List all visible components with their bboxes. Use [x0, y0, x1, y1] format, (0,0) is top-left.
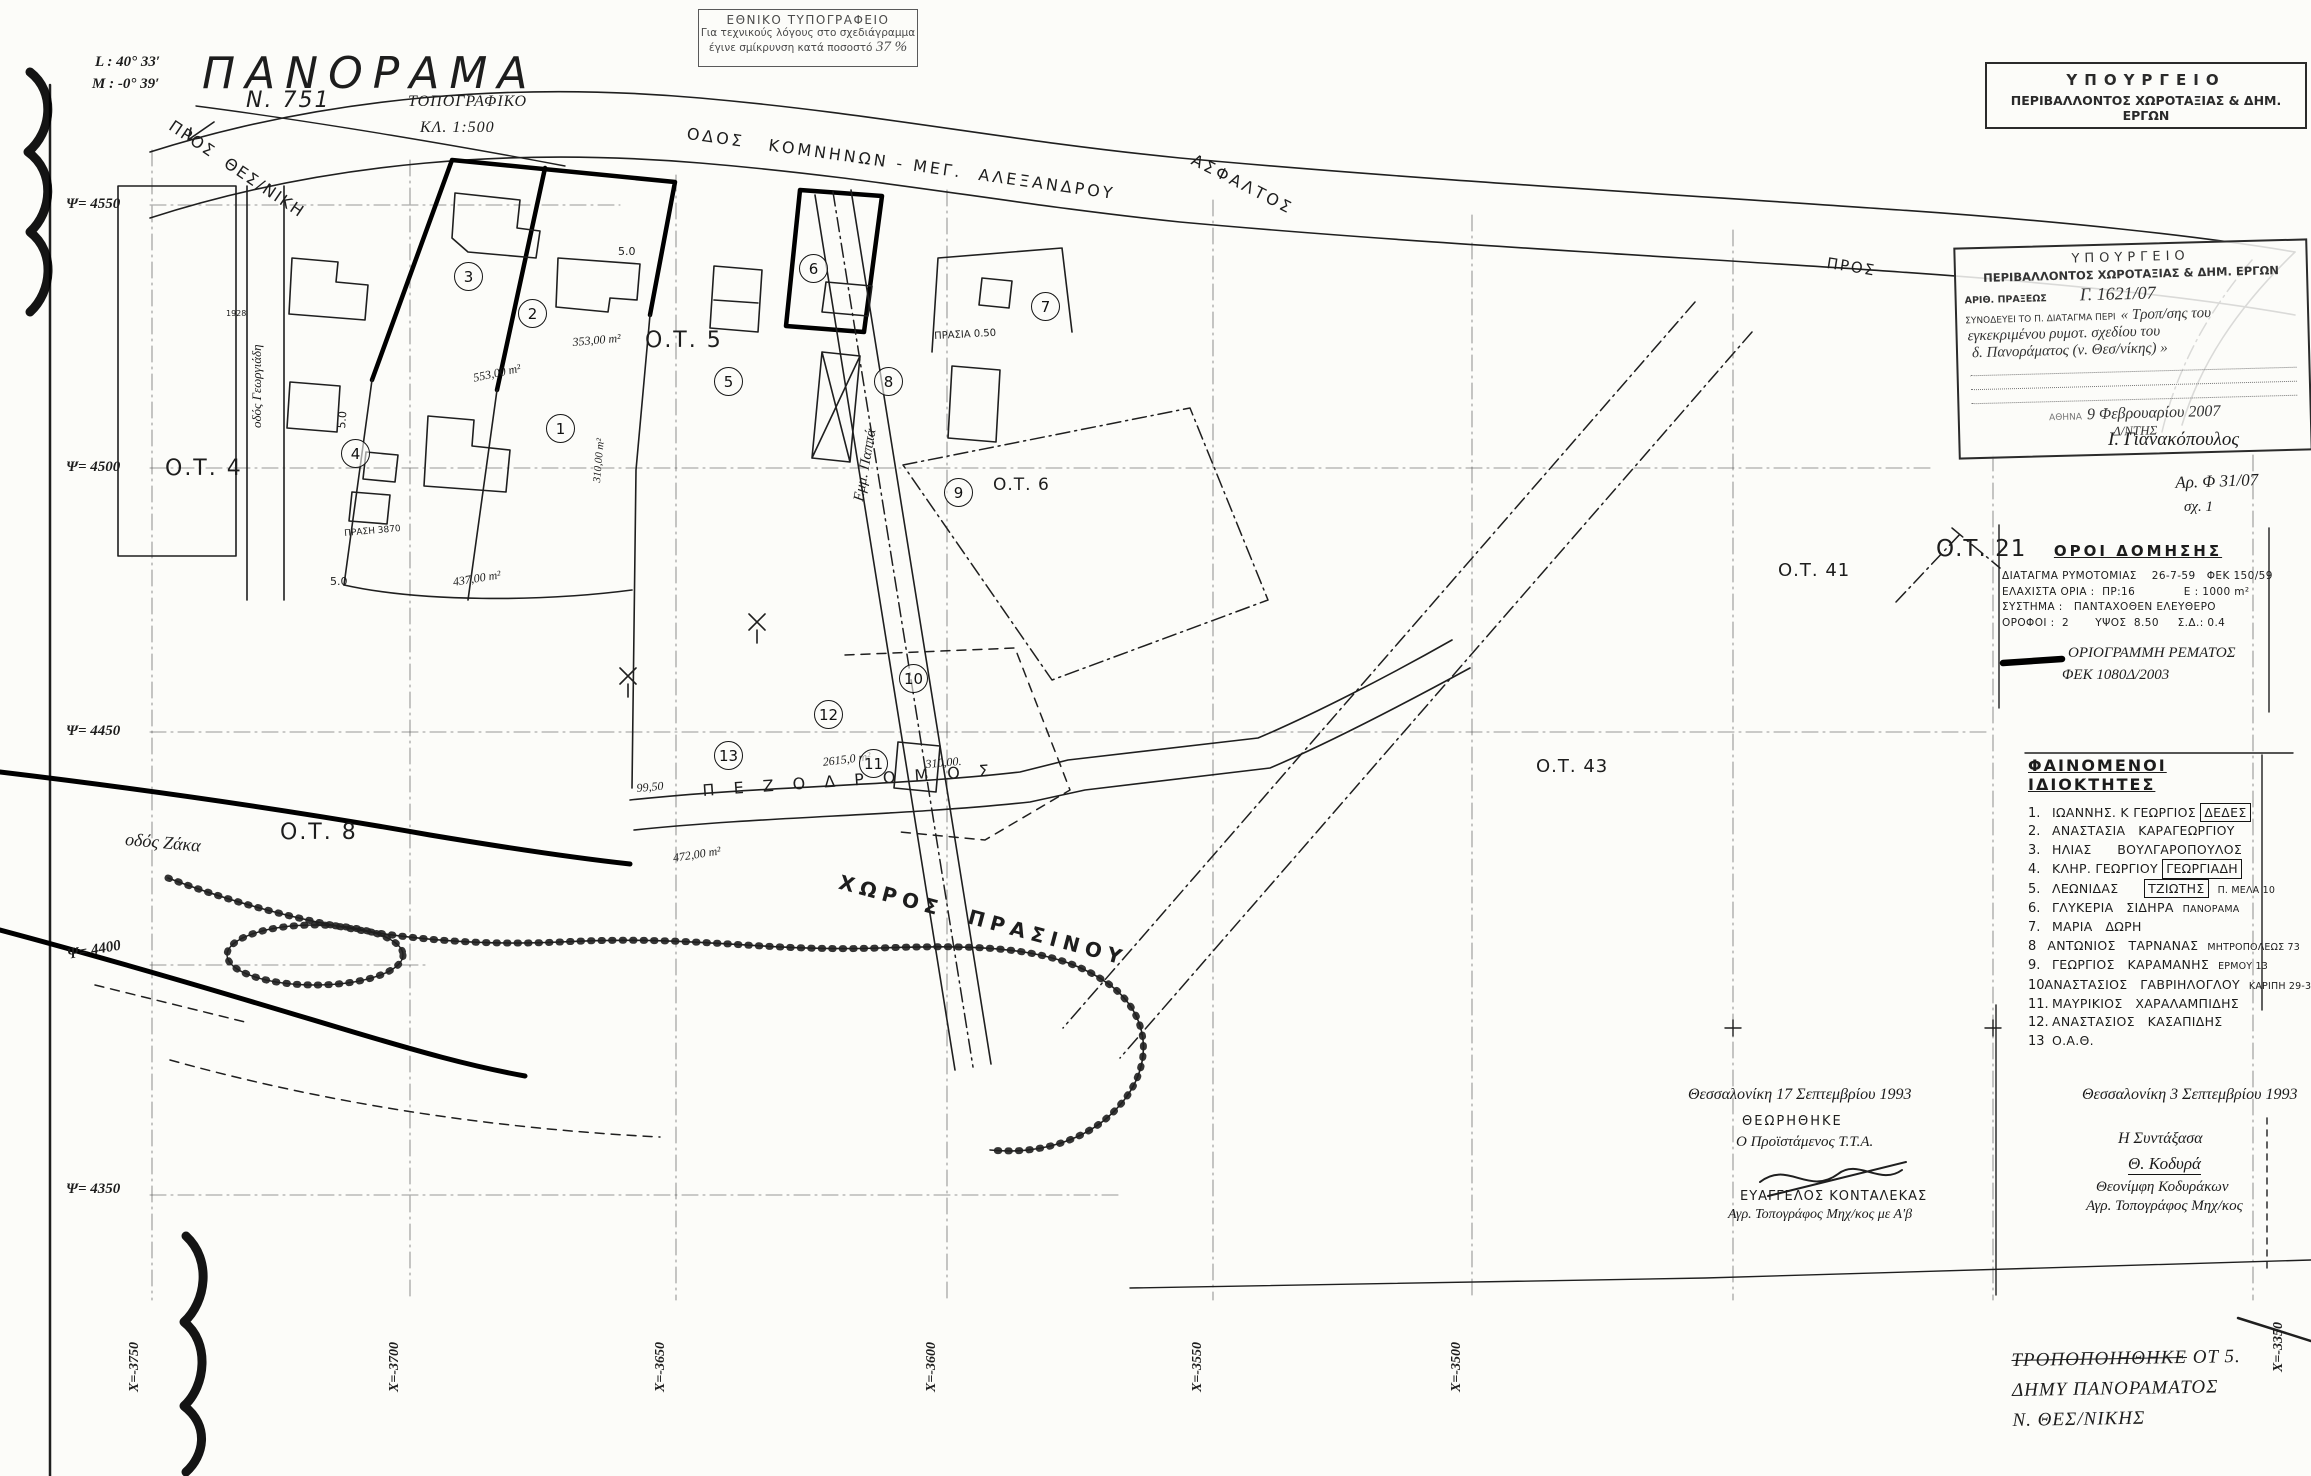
- width-measure: 5.0: [618, 246, 636, 257]
- owner-name: ΗΛΙΑΣ ΒΟΥΛΓΑΡΟΠΟΥΛΟΣ: [2052, 841, 2242, 858]
- owner-address-note: ΚΑΡΙΠΗ 29-31: [2249, 978, 2311, 995]
- owner-number: 5.: [2028, 881, 2052, 898]
- stamp-city-label: ΑΘΗΝΑ: [2049, 412, 2082, 423]
- block-label-ot8: Ο.Τ. 8: [280, 822, 358, 844]
- print-office-note-1: Για τεχνικούς λόγους στο σχεδιάγραμμα: [699, 27, 917, 39]
- owner-number: 7.: [2028, 919, 2052, 936]
- grid-x-label: Χ=-3350: [2272, 1322, 2286, 1372]
- building-terms-rows: ΔΙΑΤΑΓΜΑ ΡΥΜΟΤΟΜΙΑΣ 26-7-59 ΦΕΚ 150/59ΕΛ…: [2002, 569, 2274, 631]
- parcel-number-7: 7: [1031, 292, 1060, 321]
- owner-number: 10: [2028, 977, 2045, 994]
- parcel-number-11: 11: [859, 749, 888, 778]
- owner-name: ΜΑΥΡΙΚΙΟΣ ΧΑΡΑΛΑΜΠΙΔΗΣ: [2052, 995, 2239, 1012]
- building-terms-row: ΔΙΑΤΑΓΜΑ ΡΥΜΟΤΟΜΙΑΣ 26-7-59 ΦΕΚ 150/59: [2002, 569, 2274, 585]
- owner-row: 4.ΚΛΗΡ. ΓΕΩΡΓΙΟΥ ΓΕΩΡΓΙΑΔΗ: [2028, 859, 2300, 878]
- sign-left-role: Ο Προϊστάμενος Τ.Τ.Α.: [1736, 1134, 1988, 1151]
- sign-right-title: Αγρ. Τοπογράφος Μηχ/κος: [2086, 1198, 2302, 1215]
- block-label-ot6: Ο.Τ. 6: [993, 477, 1050, 494]
- owners-panel: ΦΑΙΝΟΜΕΝΟΙ ΙΔΙΟΚΤΗΤΕΣ 1.ΙΩΑΝΝΗΣ. Κ ΓΕΩΡΓ…: [2028, 756, 2300, 1050]
- owner-row: 6.ΓΛΥΚΕΡΙΑ ΣΙΔΗΡΑΠΑΝΟΡΑΜΑ: [2028, 899, 2300, 918]
- owner-address-note: ΕΡΜΟΥ 13: [2218, 958, 2268, 975]
- owner-number: 6.: [2028, 900, 2052, 917]
- parcel-number-3: 3: [454, 262, 483, 291]
- revision-note: ΤΡΟΠΟΠΟΙΗΘΗΚΕ ΟΤ 5. ΔΗΜΥ ΠΑΝΟΡΑΜΑΤΟΣ Ν. …: [2011, 1342, 2242, 1436]
- revision-line-3: Ν. ΘΕΣ/ΝΙΚΗΣ: [2012, 1402, 2242, 1436]
- building-terms-row: ΕΛΑΧΙΣΤΑ ΟΡΙΑ : ΠΡ:16 Ε : 1000 m²: [2002, 585, 2274, 601]
- parcel-number-6: 6: [799, 254, 828, 283]
- approval-stamp: ΥΠΟΥΡΓΕΙΟ ΠΕΡΙΒΑΛΛΟΝΤΟΣ ΧΩΡΟΤΑΞΙΑΣ & ΔΗΜ…: [1953, 238, 2311, 459]
- owner-name: ΑΝΤΩΝΙΟΣ ΤΑΡΝΑΝΑΣ: [2047, 937, 2198, 954]
- owner-row: 1.ΙΩΑΝΝΗΣ. Κ ΓΕΩΡΓΙΟΣ ΔΕΔΕΣ: [2028, 803, 2300, 822]
- owner-name: ΙΩΑΝΝΗΣ. Κ ΓΕΩΡΓΙΟΣ: [2052, 804, 2200, 821]
- parcel-number-2: 2: [518, 299, 547, 328]
- owner-name: ΓΕΩΡΓΙΟΣ ΚΑΡΑΜΑΝΗΣ: [2052, 956, 2209, 973]
- parcel-number-8: 8: [874, 367, 903, 396]
- parcel-number-13: 13: [714, 741, 743, 770]
- owners-title: ΦΑΙΝΟΜΕΝΟΙ ΙΔΙΟΚΤΗΤΕΣ: [2028, 756, 2300, 794]
- decree-subject-1: « Τροπ/σης του: [2120, 305, 2211, 323]
- revision-line-1: ΤΡΟΠΟΠΟΙΗΘΗΚΕ ΟΤ 5.: [2011, 1342, 2241, 1376]
- map-type-label: ΤΟΠΟΓΡΑΦΙΚΟ: [408, 94, 527, 110]
- owner-row: 5.ΛΕΩΝΙΔΑΣ ΤΖΙΩΤΗΣΠ. ΜΕΛΑ 10: [2028, 879, 2300, 899]
- owner-row: 9.ΓΕΩΡΓΙΟΣ ΚΑΡΑΜΑΝΗΣΕΡΜΟΥ 13: [2028, 956, 2300, 975]
- owner-name: ΑΝΑΣΤΑΣΙΑ ΚΑΡΑΓΕΩΡΓΙΟΥ: [2052, 822, 2235, 839]
- owner-name-boxed: ΓΕΩΡΓΙΑΔΗ: [2162, 859, 2242, 878]
- owner-number: 4.: [2028, 861, 2052, 878]
- print-office-note-2: έγινε σμίκρυνση κατά ποσοστό 37 %: [699, 39, 917, 56]
- stream-legend-fek: ΦΕΚ 1080Δ/2003: [2062, 668, 2169, 683]
- parcel-number-1: 1: [546, 414, 575, 443]
- owner-number: 11.: [2028, 996, 2052, 1013]
- grid-y-label: Ψ= 4450: [66, 724, 120, 739]
- owner-name-boxed: ΤΖΙΩΤΗΣ: [2144, 879, 2208, 898]
- sheet-note: σχ. 1: [2184, 500, 2213, 515]
- act-number-label: ΑΡΙΘ. ΠΡΑΞΕΩΣ: [1965, 293, 2047, 306]
- grid-y-label: Ψ= 4550: [66, 197, 120, 212]
- parcel-number-5: 5: [714, 367, 743, 396]
- owner-address-note: ΠΑΝΟΡΑΜΑ: [2183, 901, 2240, 918]
- grid-x-label: Χ=-3700: [388, 1342, 402, 1392]
- owner-row: 3.ΗΛΙΑΣ ΒΟΥΛΓΑΡΟΠΟΥΛΟΣ: [2028, 841, 2300, 859]
- grid-x-label: Χ=-3550: [1191, 1342, 1205, 1392]
- owner-row: 12.ΑΝΑΣΤΑΣΙΟΣ ΚΑΣΑΠΙΔΗΣ: [2028, 1013, 2300, 1031]
- owner-name: ΜΑΡΙΑ ΔΩΡΗ: [2052, 918, 2142, 935]
- block-label-ot4: Ο.Τ. 4: [165, 458, 243, 480]
- owner-number: 8: [2028, 938, 2047, 955]
- block-label-ot21: Ο.Τ. 21: [1936, 538, 2026, 561]
- ministry-header-line1: ΥΠΟΥΡΓΕΙΟ: [1987, 71, 2305, 89]
- signature-block-right: Θεσσαλονίκη 3 Σεπτεμβρίου 1993 Η Συντάξα…: [2082, 1086, 2302, 1215]
- sign-left-date: Θεσσαλονίκη 17 Σεπτεμβρίου 1993: [1688, 1086, 1988, 1104]
- grid-y-label: Ψ= 4350: [66, 1182, 120, 1197]
- right-diagonal-streets: [1063, 302, 2000, 1058]
- block-label-ot43: Ο.Τ. 43: [1536, 758, 1608, 776]
- owner-name: ΓΛΥΚΕΡΙΑ ΣΙΔΗΡΑ: [2052, 899, 2174, 916]
- reduction-percent: 37 %: [876, 39, 907, 55]
- revision-line-2: ΔΗΜΥ ΠΑΝΟΡΑΜΑΤΟΣ: [2012, 1372, 2242, 1406]
- parcel-number-9: 9: [944, 478, 973, 507]
- length-measure-9950: 99,50: [636, 780, 664, 794]
- owner-name: ΑΝΑΣΤΑΣΙΟΣ ΚΑΣΑΠΙΔΗΣ: [2052, 1013, 2223, 1030]
- sign-left-title: Αγρ. Τοπογράφος Μηχ/κος με Α'β: [1728, 1207, 1988, 1223]
- owner-row: 13Ο.Α.Θ.: [2028, 1032, 2300, 1050]
- parcel-number-10: 10: [899, 664, 928, 693]
- owners-list: 1.ΙΩΑΝΝΗΣ. Κ ΓΕΩΡΓΙΟΣ ΔΕΔΕΣ2.ΑΝΑΣΤΑΣΙΑ Κ…: [2028, 803, 2300, 1050]
- print-office-title: ΕΘΝΙΚΟ ΤΥΠΟΓΡΑΦΕΙΟ: [699, 13, 917, 27]
- act-number-value: Γ. 1621/07: [2080, 282, 2156, 304]
- owner-row: 2.ΑΝΑΣΤΑΣΙΑ ΚΑΡΑΓΕΩΡΓΙΟΥ: [2028, 822, 2300, 840]
- owner-name: ΛΕΩΝΙΔΑΣ: [2052, 880, 2144, 897]
- sign-right-role: Η Συντάξασα: [2118, 1130, 2302, 1148]
- street-label-georgiadi: οδός Γεωργιάδη: [250, 344, 263, 428]
- parcel-number-4: 4: [341, 439, 370, 468]
- parcel-number-12: 12: [814, 700, 843, 729]
- map-scale-label: ΚΛ. 1:500: [420, 120, 495, 136]
- grid-x-label: Χ=-3500: [1450, 1342, 1464, 1392]
- owner-row: 8ΑΝΤΩΝΙΟΣ ΤΑΡΝΑΝΑΣΜΗΤΡΟΠΟΛΕΩΣ 73: [2028, 937, 2300, 956]
- block-label-ot5: Ο.Τ. 5: [645, 330, 723, 352]
- signature-block-left: Θεσσαλονίκη 17 Σεπτεμβρίου 1993 ΘΕΩΡΗΘΗΚ…: [1688, 1086, 1988, 1223]
- ministry-header-line2: ΠΕΡΙΒΑΛΛΟΝΤΟΣ ΧΩΡΟΤΑΞΙΑΣ & ΔΗΜ. ΕΡΓΩΝ: [1987, 93, 2305, 123]
- sheet-edge: [28, 72, 203, 1476]
- owner-row: 11.ΜΑΥΡΙΚΙΟΣ ΧΑΡΑΛΑΜΠΙΔΗΣ: [2028, 995, 2300, 1013]
- owner-name: Ο.Α.Θ.: [2052, 1032, 2094, 1049]
- width-measure: 5.0: [336, 411, 348, 429]
- buildings: [287, 193, 1012, 792]
- sign-right-name: Θεονίμφη Κοδυράκων: [2096, 1179, 2302, 1196]
- block-label-ot41: Ο.Τ. 41: [1778, 562, 1850, 580]
- length-measure-310: 310,00.: [925, 755, 962, 770]
- owner-address-note: Π. ΜΕΛΑ 10: [2218, 882, 2276, 899]
- ministry-header: ΥΠΟΥΡΓΕΙΟ ΠΕΡΙΒΑΛΛΟΝΤΟΣ ΧΩΡΟΤΑΞΙΑΣ & ΔΗΜ…: [1985, 62, 2307, 129]
- map-linework: [0, 0, 2311, 1476]
- owner-row: 10ΑΝΑΣΤΑΣΙΟΣ ΓΑΒΡΙΗΛΟΓΛΟΥΚΑΡΙΠΗ 29-31: [2028, 976, 2300, 995]
- print-office-stamp: ΕΘΝΙΚΟ ΤΥΠΟΓΡΑΦΕΙΟ Για τεχνικούς λόγους …: [698, 9, 918, 67]
- owner-address-note: ΜΗΤΡΟΠΟΛΕΩΣ 73: [2207, 939, 2300, 956]
- map-number: N. 751: [246, 90, 330, 112]
- survey-point: 1928: [226, 310, 246, 318]
- grid-x-label: Χ=-3600: [925, 1342, 939, 1392]
- building-terms-row: ΣΥΣΤΗΜΑ : ΠΑΝΤΑΧΟΘΕΝ ΕΛΕΥΘΕΡΟ: [2002, 600, 2274, 616]
- width-measure: 5.0: [330, 576, 348, 587]
- topographic-map-sheet: L : 40° 33′ M : -0° 39′ ΠΑΝΟΡΑΜΑ N. 751 …: [0, 0, 2311, 1476]
- tree-symbols: [620, 614, 765, 697]
- file-number-note: Αρ. Φ 31/07: [2175, 471, 2259, 491]
- owner-name: ΚΛΗΡ. ΓΕΩΡΓΙΟΥ: [2052, 860, 2162, 877]
- owner-row: 7.ΜΑΡΙΑ ΔΩΡΗ: [2028, 918, 2300, 936]
- sign-right-date: Θεσσαλονίκη 3 Σεπτεμβρίου 1993: [2082, 1086, 2302, 1104]
- building-terms-panel: ΟΡΟΙ ΔΟΜΗΣΗΣ ΔΙΑΤΑΓΜΑ ΡΥΜΟΤΟΜΙΑΣ 26-7-59…: [2002, 542, 2274, 631]
- stamp-date: 9 Φεβρουαρίου 2007: [2087, 403, 2221, 423]
- owner-number: 9.: [2028, 957, 2052, 974]
- owner-name-boxed: ΔΕΔΕΣ: [2200, 803, 2250, 822]
- grid-x-label: Χ=-3750: [128, 1342, 142, 1392]
- parcel-lines: [118, 186, 1470, 1070]
- building-terms-title: ΟΡΟΙ ΔΟΜΗΣΗΣ: [2002, 542, 2274, 560]
- owner-number: 3.: [2028, 842, 2052, 859]
- building-terms-row: ΟΡΟΦΟΙ : 2 ΥΨΟΣ 8.50 Σ.Δ.: 0.4: [2002, 616, 2274, 632]
- owner-number: 2.: [2028, 823, 2052, 840]
- longitude-note: M : -0° 39′: [92, 77, 159, 92]
- owner-number: 12.: [2028, 1014, 2052, 1031]
- stamp-signature: Ι. Γιανακόπουλος: [2108, 430, 2239, 449]
- stream-legend-text: ΟΡΙΟΓΡΑΜΜΗ ΡΕΜΑΤΟΣ: [2068, 646, 2236, 661]
- owner-number: 13: [2028, 1033, 2052, 1050]
- owner-name: ΑΝΑΣΤΑΣΙΟΣ ΓΑΒΡΙΗΛΟΓΛΟΥ: [2045, 976, 2240, 993]
- sign-left-name: ΕΥΑΓΓΕΛΟΣ ΚΟΝΤΑΛΕΚΑΣ: [1740, 1189, 1988, 1204]
- grid-x-label: Χ=-3650: [654, 1342, 668, 1392]
- sign-left-approved: ΘΕΩΡΗΘΗΚΕ: [1742, 1114, 1988, 1129]
- sign-right-signature: Θ. Κοδυρά: [2128, 1154, 2201, 1175]
- grid-y-label: Ψ= 4500: [66, 460, 120, 475]
- owner-number: 1.: [2028, 805, 2052, 822]
- latitude-note: L : 40° 33′: [95, 55, 160, 70]
